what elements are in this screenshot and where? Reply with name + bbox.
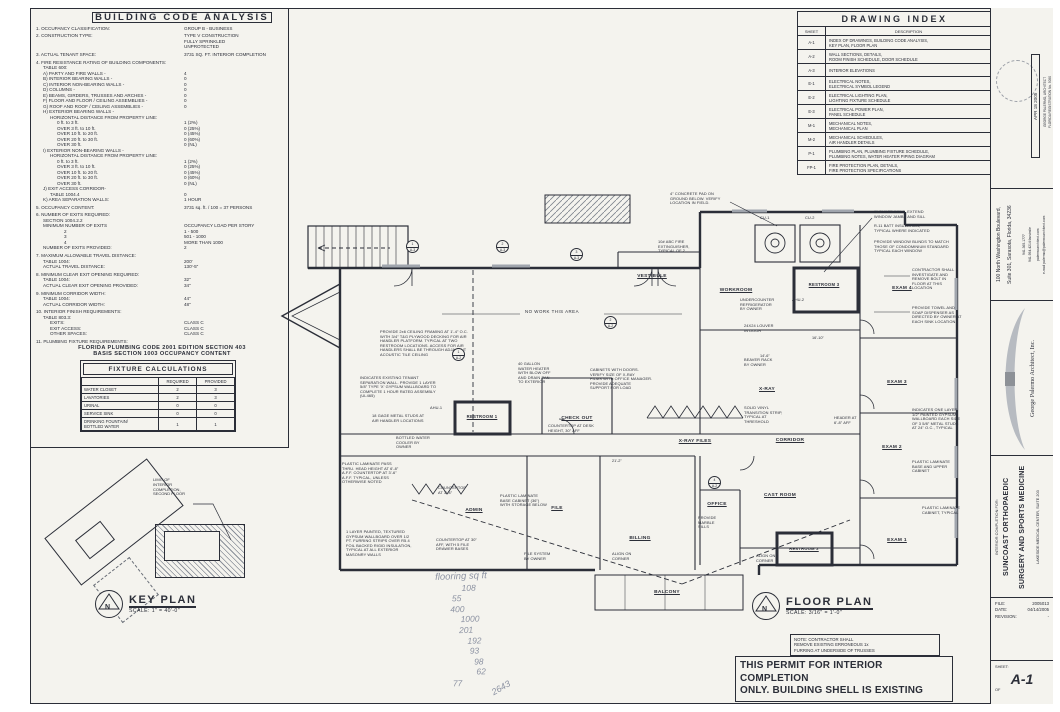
fixture-calculations-table: FIXTURE CALCULATIONS REQUIRED PROVIDED W… [80, 360, 236, 432]
annotation-pl-cabinet: PLASTIC LAMINATE CABINET, TYPICAL [922, 506, 960, 515]
room-label-xray-files: X-RAY FILES [679, 439, 712, 444]
bca-bottom-divider [30, 447, 289, 448]
firm-name: George Palermo Architect, Inc. [1029, 302, 1036, 454]
architect-email: e-mail palermo@palermoarchitect.com [1042, 190, 1046, 300]
sheet-number-block: SHEET: A-1 OF [991, 662, 1053, 694]
project-address: LAKESIDE MEDICAL CENTER, SUITE 203 [1036, 457, 1040, 597]
annotation-ahu1: AHU-1 [430, 406, 442, 411]
bca-row: UNPROTECTED [36, 44, 288, 50]
handwritten-number: 93 [470, 645, 490, 656]
annotation-countertop-file: COUNTERTOP AT 30" AFF, WITH 5 FILE DRAWE… [436, 538, 477, 552]
bca-rows: 1. OCCUPANCY CLASSIFICATION: GROUP B - B… [36, 26, 288, 345]
project-name-line2: SURGERY AND SPORTS MEDICINE [1019, 457, 1026, 597]
north-arrow-icon: N [95, 590, 123, 618]
annotation-countertop-admin: COUNTERTOP AT 3'-4" [438, 486, 466, 495]
floor-plan-drawing: VESTIBULE WORKROOM RESTROOM 3 EXAM 4 RES… [262, 188, 962, 618]
room-label-xray: X-RAY [759, 387, 775, 392]
room-label-exam2: EXAM 2 [882, 445, 902, 450]
north-arrow-icon: N [752, 592, 780, 620]
annotation-align-corner-1: ALIGN ON CORNER [612, 552, 631, 561]
annotation-align-corner-2: ALIGN ON CORNER [756, 554, 775, 563]
date-value: 04/14/2005 [1027, 607, 1049, 612]
annotation-batt-insulation: R-11 BATT INSULATION, TYPICAL WHERE INDI… [874, 224, 930, 233]
annotation-water-cooler: BOTTLED WATER COOLER BY OWNER [396, 436, 430, 450]
no-work-area-label: NO WORK THIS AREA [525, 309, 579, 314]
bca-row: 3. ACTUAL TENANT SPACE: 3731 SQ. FT. INT… [36, 52, 288, 58]
bca-row: NUMBER OF EXITS PROVIDED: 2 [36, 245, 288, 251]
handwritten-flooring-notes: flooring sq ft 1085540010002011929398627… [435, 571, 491, 689]
file-value: 2005013 [1032, 601, 1049, 606]
floor-plan-scale: SCALE: 3/16" = 1'-0" [786, 610, 873, 616]
annotation-file-system: FILE SYSTEM BY OWNER [524, 552, 550, 561]
room-label-file: FILE [551, 506, 563, 511]
room-label-cast-room: CAST ROOM [764, 493, 796, 498]
dimension-14-6: 14'-6" [760, 354, 770, 358]
fixture-calc-row: WATER CLOSET 2 3 [82, 386, 235, 394]
fixture-calc-row: URINAL 0 0 [82, 402, 235, 410]
handwritten-number: 62 [476, 666, 490, 677]
bca-footer-line2: BASIS SECTION 1003 OCCUPANCY CONTENT [36, 352, 288, 358]
detail-marker: 2A-2 [604, 316, 617, 329]
key-plan-titleblock: N KEY PLAN SCALE: 1" = 40'-0" [95, 590, 196, 618]
floor-plan-title: FLOOR PLAN [786, 596, 873, 610]
sheet-number: A-1 [995, 671, 1049, 687]
permit-line-2: ONLY. BUILDING SHELL IS EXISTING [740, 685, 948, 698]
drawing-index-row: E-2 ELECTRICAL LIGHTING PLAN, LIGHTING F… [798, 91, 991, 105]
annotation-metal-studs: 18 GAGE METAL STUDS AT AIR HANDLER LOCAT… [372, 414, 424, 423]
sheet-of-label: OF [995, 687, 1049, 692]
handwritten-number: 98 [474, 656, 490, 667]
bca-title: BUILDING CODE ANALYSIS [92, 12, 272, 23]
bca-row: 5. OCCUPANCY CONTENT: 3731 sq. ft. / 100… [36, 205, 288, 211]
annotation-marble-sills: PROVIDE MARBLE SILLS [698, 516, 716, 530]
detail-marker: 1A-3 [406, 240, 419, 253]
detail-marker: 2A-3 [496, 240, 509, 253]
room-label-exam1: EXAM 1 [887, 538, 907, 543]
architect-phone: 941.365.1777 [1022, 190, 1026, 300]
bca-row: ACTUAL CLEAR EXIT OPENING PROVIDED: 34" [36, 283, 288, 289]
key-plan: LIMIT OF INTERIOR COMPLETION, SECOND FLO… [45, 478, 280, 646]
room-label-vestibule: VESTIBULE [637, 274, 667, 279]
annotation-concrete-pad: 4" CONCRETE PAD ON GROUND BELOW. VERIFY … [670, 192, 720, 206]
annotation-xray-cabinets: CABINETS WITH DOORS. VERIFY SIZE OF X-RA… [590, 368, 652, 391]
handwritten-number: 192 [467, 635, 489, 646]
annotation-cu1: CU-1 [760, 216, 769, 221]
annotation-header-aff: HEADER AT 6'-8" AFF [834, 416, 857, 425]
sheet-column-header: SHEET [798, 27, 826, 35]
architect-registration-line2: FLORIDA REGISTRATION No. 5090 [1048, 14, 1052, 190]
bca-row: OTHER SPACES: CLASS C [36, 331, 288, 337]
provided-header: PROVIDED [197, 378, 235, 386]
permit-note-box: THIS PERMIT FOR INTERIOR COMPLETION ONLY… [735, 656, 953, 702]
room-label-office: OFFICE [707, 502, 726, 507]
annotation-tenant-separation: INDICATES EXISTING TENANT SEPARATION WAL… [360, 376, 436, 399]
revision-value: - [1048, 614, 1049, 619]
drawing-index-row: FP-1 FIRE PROTECTION PLAN, DETAILS, FIRE… [798, 161, 991, 174]
key-plan-title: KEY PLAN [129, 594, 196, 608]
annotation-fire-extinguisher: 10# ABC FIRE EXTINGUISHER, TYPICAL OF 2 [658, 240, 690, 254]
room-label-balcony: BALCONY [654, 590, 680, 595]
fixture-calc-row: DRINKING FOUNTAIN/ BOTTLED WATER 1 1 [82, 418, 235, 431]
description-column-header: DESCRIPTION [826, 27, 991, 35]
building-code-analysis: BUILDING CODE ANALYSIS 1. OCCUPANCY CLAS… [36, 12, 288, 357]
annotation-wall-type: INDICATES ONE LAYER 1/2" PAINTED GYPSUM … [912, 408, 960, 431]
architect-address-line2: Suite 301, Sarasota, Florida, 34236 [1007, 190, 1013, 300]
drawing-index-title: DRAWING INDEX [798, 12, 991, 27]
drawing-index-rows: A-1 INDEX OF DRAWINGS, BUILDING CODE ANA… [798, 36, 991, 174]
required-header: REQUIRED [159, 378, 197, 386]
drawing-index-row: E-3 ELECTRICAL POWER PLAN, PANEL SCHEDUL… [798, 105, 991, 119]
fixture-calc-row: SERVICE SINK 0 0 [82, 410, 235, 418]
dimension-16-10: 16'-10" [812, 336, 824, 340]
drawing-index-row: A-2 WALL SECTIONS, DETAILS, ROOM FINISH … [798, 50, 991, 64]
drawing-index-row: A-3 INTERIOR ELEVATIONS [798, 64, 991, 77]
architectural-drawing-sheet: BUILDING CODE ANALYSIS 1. OCCUPANCY CLAS… [0, 0, 1060, 712]
annotation-louver: 24X24 LOUVER IN DOOR [744, 324, 774, 333]
room-label-exam3: EXAM 3 [887, 380, 907, 385]
annotation-water-heater: 40 GALLON WATER HEATER WITH BLOW OFF AND… [518, 362, 551, 385]
annotation-countertop-desk: COUNTERTOP AT DESK HEIGHT, 30" AFF [548, 424, 594, 433]
annotation-vinyl-strip: SOLID VINYL TRANSITION STRIP, TYPICAL AT… [744, 406, 782, 424]
room-label-restroom2: RESTROOM 2 [789, 546, 818, 551]
title-block-strip: APR 18 2005 GEORGE PALERMO, ARCHITECT FL… [990, 8, 1053, 704]
annotation-remove-bolt: CONTRACTOR SHALL INVESTIGATE AND REMOVE … [912, 268, 962, 291]
permit-line-1: THIS PERMIT FOR INTERIOR COMPLETION [740, 660, 948, 685]
annotation-window-blinds: PROVIDE WINDOW BLINDS TO MATCH THOSE OF … [874, 240, 949, 254]
annotation-beaver-rack: BEAVER RACK BY OWNER [744, 358, 773, 367]
bca-row: 1. OCCUPANCY CLASSIFICATION: GROUP B - B… [36, 26, 288, 32]
key-plan-leader [45, 478, 280, 646]
north-letter: N [762, 606, 767, 613]
key-plan-limit-note: LIMIT OF INTERIOR COMPLETION, SECOND FLO… [153, 478, 185, 497]
detail-marker: 3A-3 [570, 248, 583, 261]
architect-website: palermoarchitect.com [1036, 190, 1040, 300]
file-label: FILE: [995, 601, 1005, 606]
fixture-calc-title: FIXTURE CALCULATIONS [83, 363, 233, 375]
project-name-line1: SUNCOAST ORTHOPAEDIC [1003, 457, 1010, 597]
drawing-index-header-row: SHEET DESCRIPTION [798, 27, 991, 36]
handwritten-number-list: 10855400100020119293986277 [435, 582, 490, 690]
floor-plan-titleblock: N FLOOR PLAN SCALE: 3/16" = 1'-0" [752, 592, 873, 620]
drawing-index-row: M-2 MECHANICAL SCHEDULES, AIR HANDLER DE… [798, 133, 991, 147]
file-info-block: FILE:2005013 DATE:04/14/2005 REVISION:- [991, 599, 1053, 619]
room-label-workroom: WORKROOM [720, 288, 753, 293]
handwritten-number: 77 [453, 677, 491, 689]
drawing-index-table: DRAWING INDEX SHEET DESCRIPTION A-1 INDE… [797, 11, 992, 175]
dimension-21-2: 21'-2" [612, 459, 622, 463]
key-plan-scale: SCALE: 1" = 40'-0" [129, 608, 196, 614]
bca-row: ACTUAL CORRIDOR WIDTH: 48" [36, 302, 288, 308]
room-label-admin: ADMIN [465, 508, 482, 513]
revision-label: REVISION: [995, 614, 1017, 619]
drawing-index-row: P-1 PLUMBING PLAN, PLUMBING FIXTURE SCHE… [798, 147, 991, 161]
bca-row: K) AREA SEPARATION WALLS: 1 HOUR [36, 197, 288, 203]
fixture-calc-header-row: REQUIRED PROVIDED [82, 378, 235, 386]
room-label-checkout: CHECK OUT [561, 416, 592, 421]
sheet-label: SHEET: [995, 664, 1049, 669]
annotation-pl-base-upper: PLASTIC LAMINATE BASE AND UPPER CABINET [912, 460, 950, 474]
architect-fax: 941.954.4214 facsimile [1028, 190, 1032, 300]
annotation-masonry-walls: 1 LAYER PAINTED, TEXTURED GYPSUM WALLBOA… [346, 530, 412, 558]
detail-marker: 1A-2 [452, 348, 465, 361]
detail-marker: 4A-2 [708, 476, 721, 489]
architect-registration-line1: GEORGE PALERMO, ARCHITECT [1043, 14, 1047, 190]
room-label-billing: BILLING [629, 536, 650, 541]
bca-row: ACTUAL TRAVEL DISTANCE: 130'-5" [36, 264, 288, 270]
north-letter: N [105, 604, 110, 611]
bca-row: 11. PLUMBING FIXTURE REQUIREMENTS: [36, 339, 288, 345]
annotation-chase-wall: 6" CHASE WALL, EXTEND WINDOW JAMBS AND S… [874, 210, 925, 219]
date-label: DATE: [995, 607, 1007, 612]
annotation-towel-soap: PROVIDE TOWEL AND SOAP DISPENSER AS DIRE… [912, 306, 962, 324]
annotation-cu2: CU-2 [805, 216, 814, 221]
fixture-calc-row: LAVATORIES 2 3 [82, 394, 235, 402]
annotation-pass-thru: PLASTIC LAMINATE PASS THRU. HEAD HEIGHT … [342, 462, 398, 485]
architect-address-line1: 100 North Washington Boulevard, [996, 190, 1002, 300]
drawing-index-row: A-1 INDEX OF DRAWINGS, BUILDING CODE ANA… [798, 36, 991, 50]
drawing-index-row: E-1 ELECTRICAL NOTES, ELECTRICAL SYMBOL … [798, 77, 991, 91]
annotation-ahu2: AHU-2 [792, 298, 804, 303]
handwritten-title: flooring sq ft [435, 571, 487, 583]
annotation-undercounter-fridge: UNDERCOUNTER REFRIGERATOR BY OWNER [740, 298, 774, 312]
stamp-date: APR 18 2005 [1031, 54, 1040, 158]
drawing-index-row: M-1 MECHANICAL NOTES, MECHANICAL PLAN [798, 119, 991, 133]
contractor-note-box: NOTE: CONTRACTOR SHALL REMOVE EXISTING E… [790, 634, 940, 656]
room-label-corridor: CORRIDOR [776, 438, 805, 443]
room-label-restroom3: RESTROOM 3 [809, 282, 840, 287]
room-label-restroom1: RESTROOM 1 [467, 414, 498, 419]
project-prefix: INTERIOR COMPLETION FOR: [994, 457, 999, 597]
room-label-exam4: EXAM 4 [892, 286, 912, 291]
annotation-pl-base-cabinet: PLASTIC LAMINATE BASE CABINET (36") WITH… [500, 494, 547, 508]
